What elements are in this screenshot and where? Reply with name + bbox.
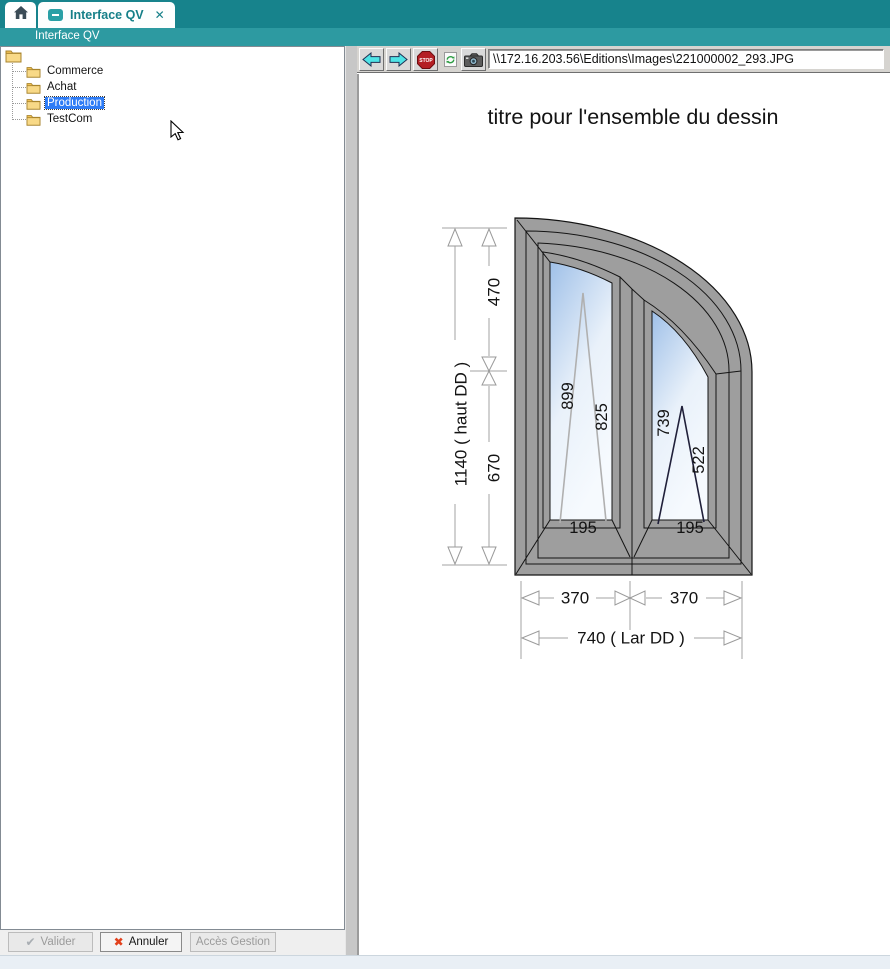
pane-left-dim-a: 899	[559, 382, 577, 410]
nav-title: Interface QV	[35, 30, 100, 42]
tab-bar: Interface QV ✕	[0, 0, 890, 28]
cancel-x-icon: ✖	[114, 935, 124, 949]
drawing-title: titre pour l'ensemble du dessin	[488, 105, 779, 129]
forward-arrow-icon	[389, 52, 408, 67]
pane-right-dim-bottom: 195	[676, 519, 704, 537]
footer-button-row: ✔ Valider ✖ Annuler Accès Gestion	[0, 930, 345, 955]
tree-guide-stub	[13, 87, 26, 88]
pane-right-dim-b: 522	[690, 446, 708, 474]
address-field[interactable]	[488, 49, 884, 69]
drawing-canvas: titre pour l'ensemble du dessin	[359, 74, 890, 955]
stop-sign-icon: STOP	[417, 51, 435, 69]
browser-toolbar: STOP	[357, 46, 890, 73]
image-viewer: titre pour l'ensemble du dessin	[357, 74, 890, 955]
right-panel: STOP	[357, 46, 890, 955]
tree-item-production[interactable]: Production	[26, 95, 104, 111]
acces-gestion-label: Accès Gestion	[196, 936, 270, 948]
dim-seg-top: 470	[485, 278, 504, 306]
acces-gestion-button[interactable]: Accès Gestion	[190, 932, 276, 952]
tree-guide-stub	[13, 119, 26, 120]
valider-label: Valider	[41, 936, 76, 948]
pane-right-dim-a: 739	[655, 409, 673, 437]
nav-bar: Interface QV	[0, 28, 890, 46]
annuler-label: Annuler	[129, 936, 169, 948]
tab-close-icon[interactable]: ✕	[155, 8, 165, 22]
folder-tree: Commerce Achat Production	[0, 46, 345, 930]
home-icon	[13, 5, 29, 25]
tab-app-icon	[48, 9, 63, 21]
folder-icon	[26, 113, 41, 126]
tree-item-label: Commerce	[45, 65, 105, 77]
dim-total-width: 740 ( Lar DD )	[577, 629, 685, 648]
folder-icon	[26, 97, 41, 110]
valider-button[interactable]: ✔ Valider	[8, 932, 93, 952]
status-bar	[0, 955, 890, 969]
snapshot-button[interactable]	[461, 48, 486, 71]
tab-interface-qv[interactable]: Interface QV ✕	[38, 2, 175, 28]
forward-button[interactable]	[386, 48, 411, 71]
stop-button[interactable]: STOP	[413, 48, 438, 71]
dim-seg-bottom: 670	[485, 454, 504, 482]
pane-left-dim-bottom: 195	[569, 519, 597, 537]
tree-root-folder[interactable]	[5, 48, 22, 68]
tree-item-label-selected: Production	[45, 97, 104, 109]
left-panel: Commerce Achat Production	[0, 46, 345, 955]
tree-item-testcom[interactable]: TestCom	[26, 111, 94, 127]
back-arrow-icon	[362, 52, 381, 67]
tree-guide-stub	[13, 71, 26, 72]
refresh-button[interactable]	[441, 51, 459, 68]
tree-item-commerce[interactable]: Commerce	[26, 63, 105, 79]
check-icon: ✔	[25, 935, 35, 949]
camera-icon	[464, 53, 483, 67]
interface-qv-window: Interface QV ✕ Interface QV	[0, 0, 890, 969]
dim-width-right: 370	[670, 589, 698, 608]
tab-home[interactable]	[5, 2, 36, 28]
tree-item-label: TestCom	[45, 113, 94, 125]
folder-icon	[26, 81, 41, 94]
annuler-button[interactable]: ✖ Annuler	[100, 932, 182, 952]
tree-item-label: Achat	[45, 81, 78, 93]
svg-text:STOP: STOP	[419, 58, 433, 64]
tree-item-achat[interactable]: Achat	[26, 79, 78, 95]
folder-icon	[26, 65, 41, 78]
back-button[interactable]	[359, 48, 384, 71]
refresh-page-icon	[444, 52, 457, 67]
tab-label: Interface QV	[70, 8, 144, 22]
dim-total-height: 1140 ( haut DD )	[452, 362, 471, 486]
tree-guide-stub	[13, 103, 26, 104]
pane-left-dim-b: 825	[593, 403, 611, 431]
panel-splitter[interactable]	[345, 46, 357, 955]
dim-width-left: 370	[561, 589, 589, 608]
